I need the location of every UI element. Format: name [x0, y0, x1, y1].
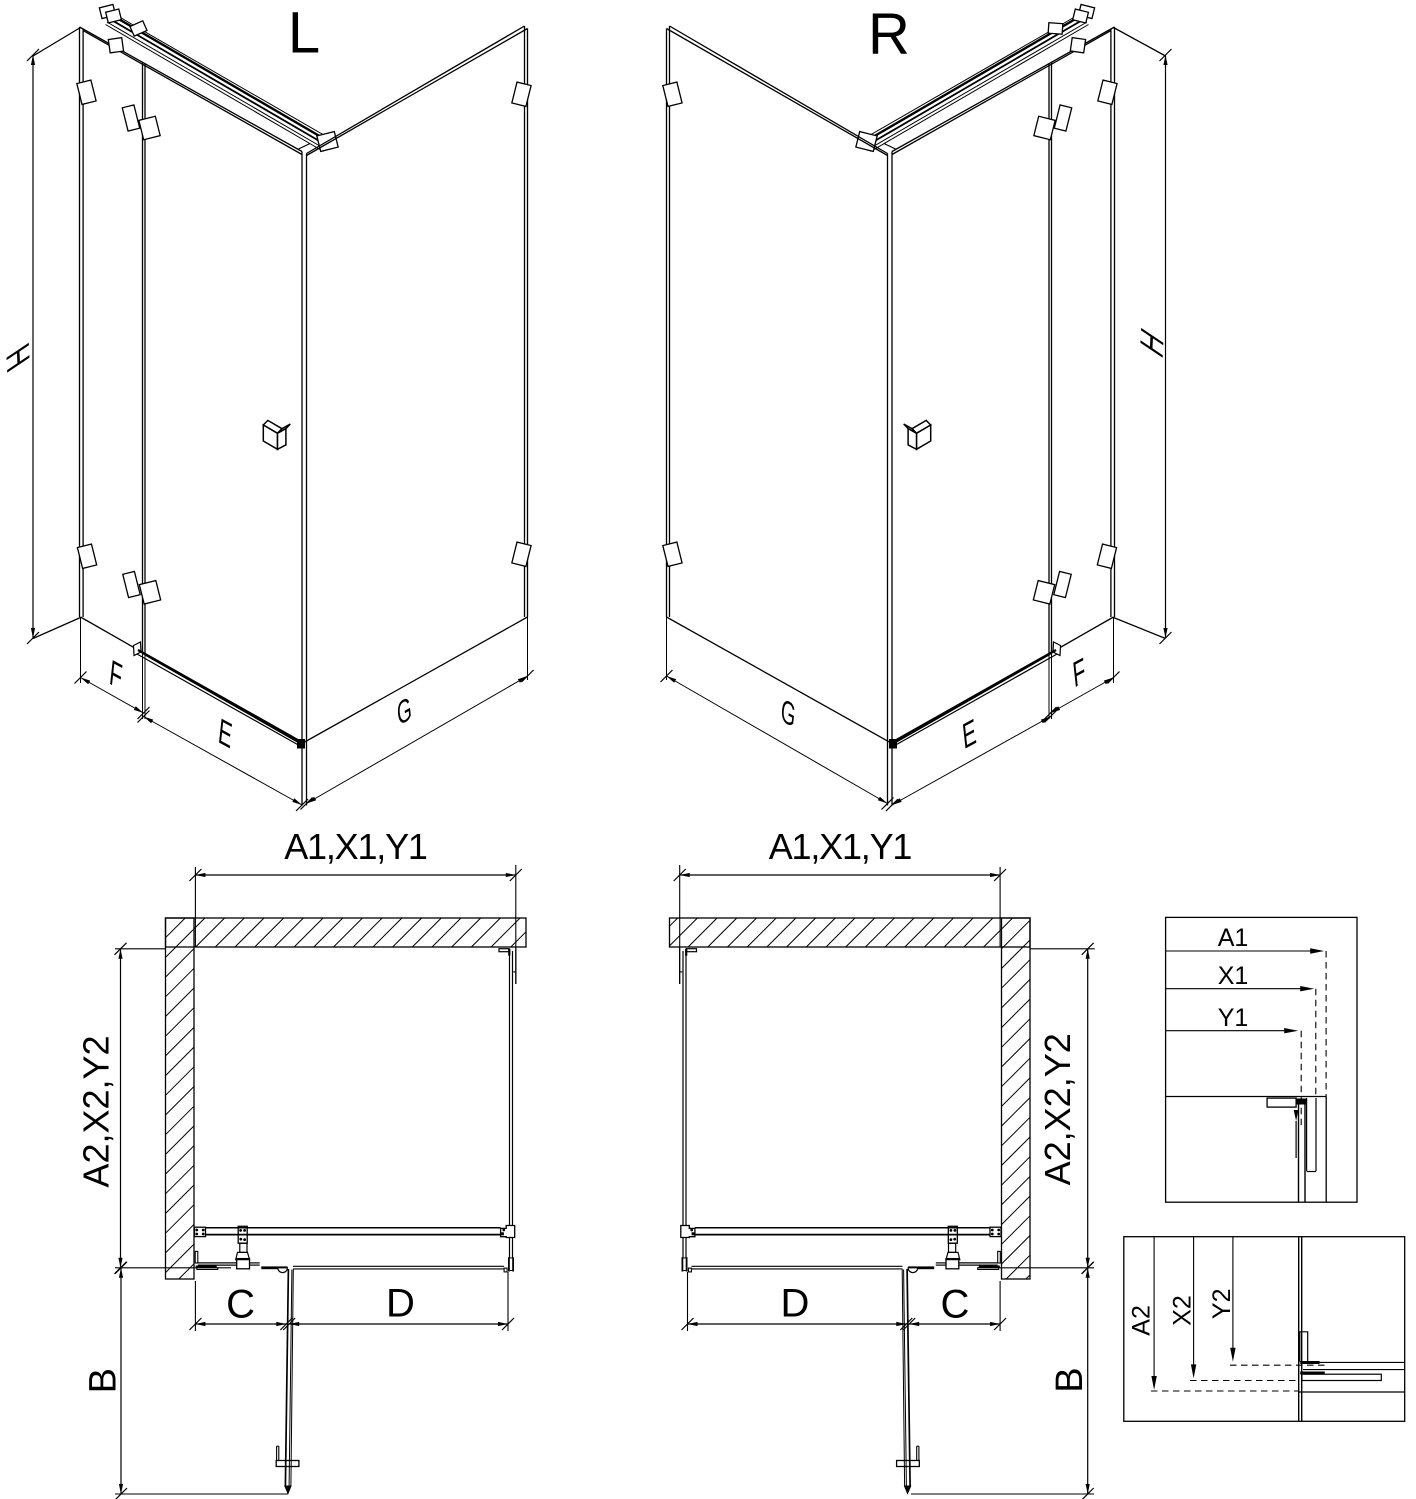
svg-text:B: B	[1049, 1367, 1091, 1392]
svg-text:X1: X1	[1218, 962, 1249, 990]
svg-text:A2,X2,Y2: A2,X2,Y2	[1037, 1033, 1078, 1185]
svg-text:X2: X2	[1168, 1295, 1196, 1326]
svg-text:A1,X1,Y1: A1,X1,Y1	[284, 826, 427, 867]
svg-text:A2: A2	[1128, 1305, 1156, 1336]
svg-text:R: R	[868, 2, 910, 67]
svg-text:B: B	[83, 1368, 125, 1393]
svg-text:A1,X1,Y1: A1,X1,Y1	[769, 826, 912, 867]
svg-text:A2,X2,Y2: A2,X2,Y2	[75, 1035, 116, 1187]
svg-text:C: C	[226, 1282, 255, 1326]
svg-text:G: G	[779, 692, 797, 735]
svg-text:F: F	[108, 653, 124, 699]
svg-text:H: H	[0, 337, 35, 380]
svg-text:A1: A1	[1218, 924, 1249, 952]
svg-text:Y2: Y2	[1208, 1289, 1236, 1320]
svg-text:G: G	[395, 690, 413, 733]
svg-text:D: D	[386, 1282, 415, 1326]
svg-text:F: F	[1071, 651, 1087, 697]
svg-text:L: L	[288, 1, 320, 66]
svg-text:D: D	[781, 1282, 810, 1326]
svg-text:C: C	[940, 1282, 969, 1326]
svg-text:E: E	[216, 711, 234, 757]
svg-text:Y1: Y1	[1218, 1004, 1249, 1032]
svg-text:E: E	[961, 711, 979, 757]
